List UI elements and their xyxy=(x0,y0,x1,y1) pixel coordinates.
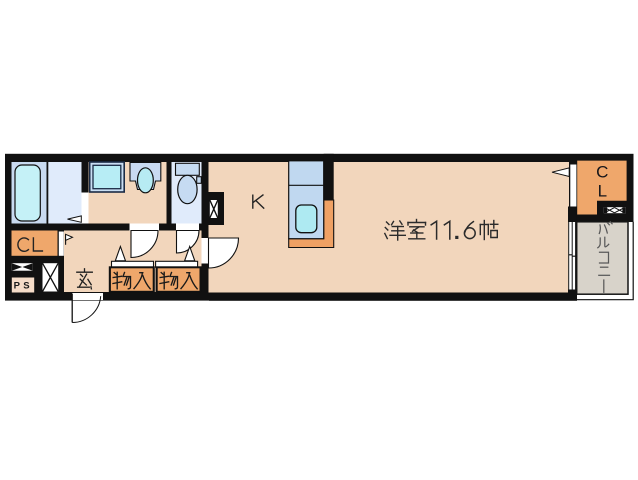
svg-text:L: L xyxy=(598,182,607,201)
svg-text:PS: PS xyxy=(14,281,33,292)
svg-text:C: C xyxy=(596,162,608,181)
